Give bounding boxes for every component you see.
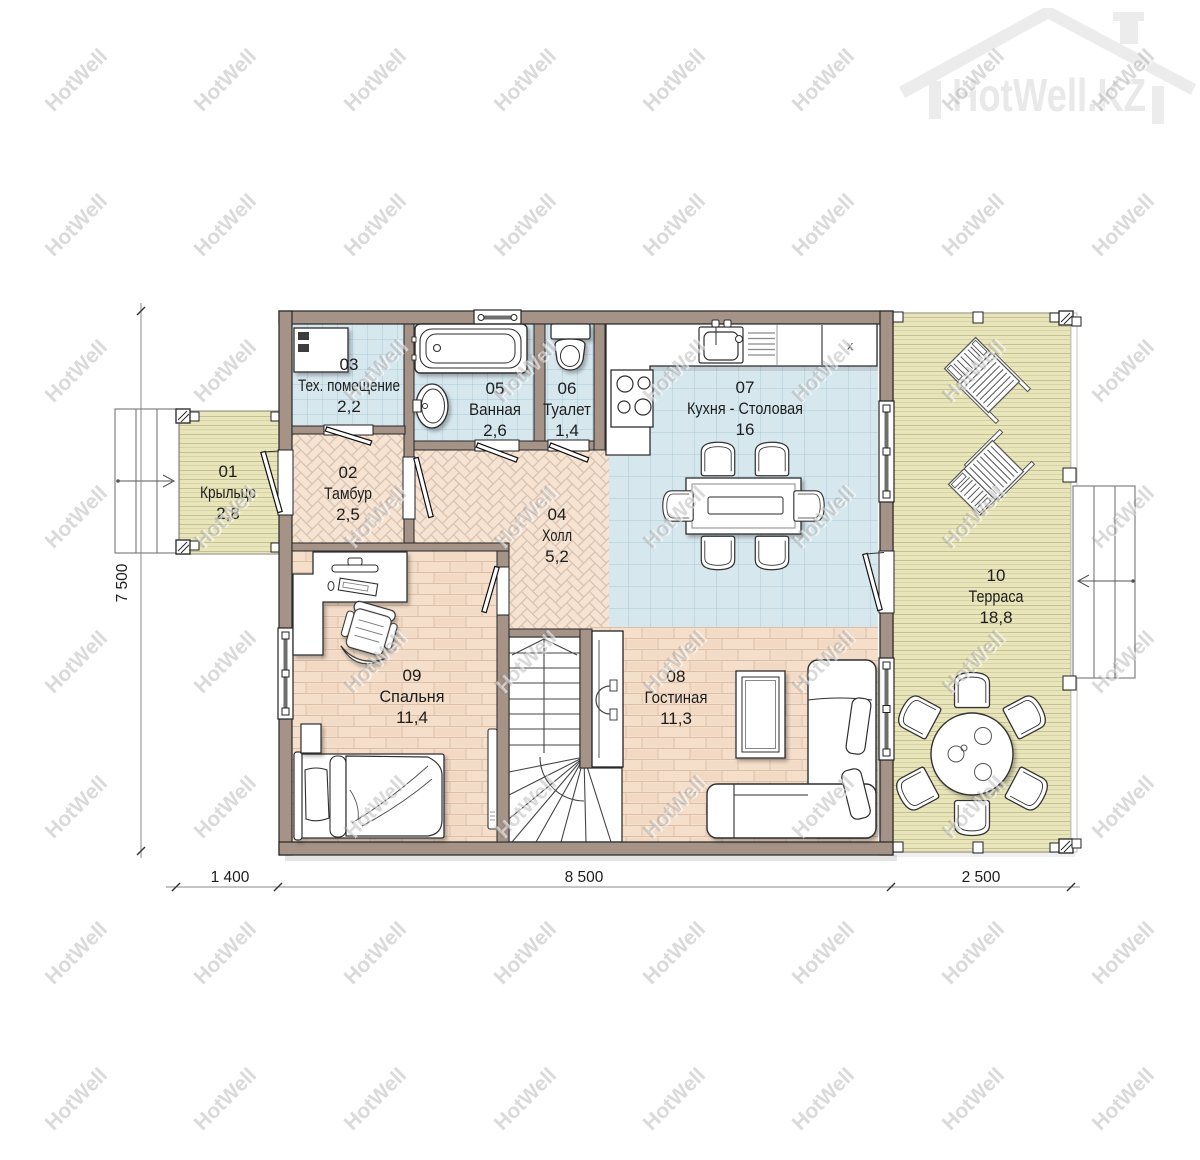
svg-text:1 400: 1 400	[211, 869, 250, 886]
svg-text:07: 07	[736, 378, 755, 397]
svg-text:Туалет: Туалет	[543, 400, 591, 419]
svg-text:Кухня - Столовая: Кухня - Столовая	[687, 399, 803, 418]
svg-text:Терраса: Терраса	[969, 587, 1024, 606]
svg-text:18,8: 18,8	[979, 608, 1012, 627]
svg-text:Холл: Холл	[542, 526, 572, 545]
svg-text:2,6: 2,6	[483, 421, 507, 440]
svg-text:11,3: 11,3	[660, 709, 692, 728]
svg-text:10: 10	[987, 566, 1006, 585]
svg-text:8 500: 8 500	[565, 869, 604, 886]
svg-text:Спальня: Спальня	[380, 687, 445, 706]
svg-text:7 500: 7 500	[114, 563, 131, 602]
svg-text:5,2: 5,2	[545, 547, 569, 566]
svg-text:16: 16	[736, 420, 755, 439]
svg-text:Ванная: Ванная	[469, 400, 521, 419]
svg-text:01: 01	[219, 462, 238, 481]
svg-text:1,4: 1,4	[555, 421, 579, 440]
svg-text:03: 03	[340, 355, 359, 374]
svg-text:Тамбур: Тамбур	[324, 484, 372, 503]
svg-text:2 500: 2 500	[962, 869, 1001, 886]
svg-text:06: 06	[558, 379, 577, 398]
svg-text:11,4: 11,4	[396, 708, 428, 727]
svg-text:02: 02	[339, 463, 358, 482]
svg-text:09: 09	[403, 666, 422, 685]
